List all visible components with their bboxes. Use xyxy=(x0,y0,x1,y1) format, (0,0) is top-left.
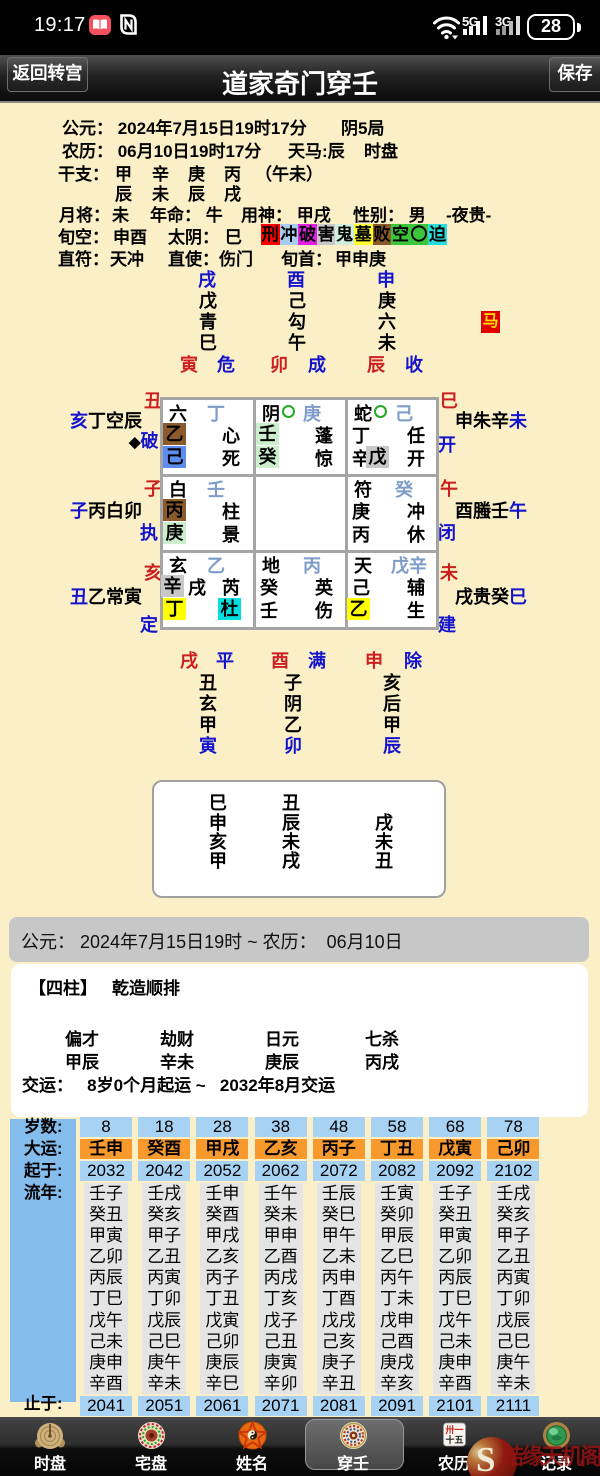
svg-text:十五: 十五 xyxy=(445,1434,463,1445)
svg-text:卅一: 卅一 xyxy=(444,1424,463,1435)
